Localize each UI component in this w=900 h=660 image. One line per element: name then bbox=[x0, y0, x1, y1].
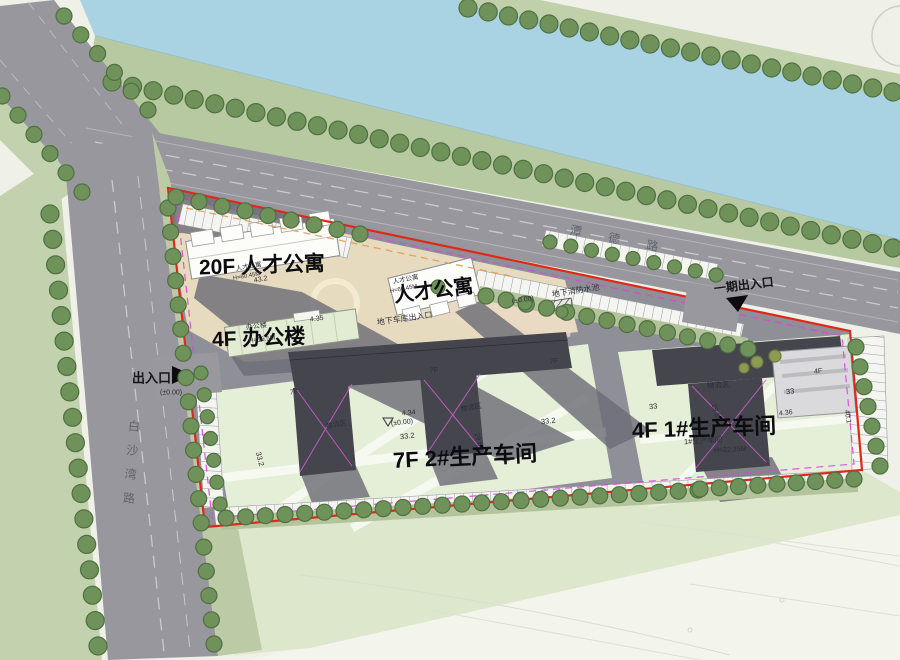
tree-icon bbox=[513, 493, 529, 509]
tree-icon bbox=[183, 418, 199, 434]
tree-icon bbox=[479, 3, 497, 21]
tree-icon bbox=[81, 561, 99, 579]
tree-icon bbox=[175, 345, 191, 361]
tree-icon bbox=[260, 208, 276, 224]
tree-icon bbox=[58, 165, 74, 181]
tree-icon bbox=[611, 487, 627, 503]
tree-icon bbox=[178, 370, 194, 386]
tree-icon bbox=[560, 19, 578, 37]
tree-icon bbox=[617, 182, 635, 200]
tree-icon bbox=[585, 243, 599, 257]
tree-icon bbox=[66, 434, 84, 452]
tree-icon bbox=[688, 264, 702, 278]
tree-icon bbox=[90, 46, 106, 62]
tree-icon bbox=[769, 350, 781, 362]
tree-icon bbox=[165, 248, 181, 264]
tree-icon bbox=[535, 165, 553, 183]
tree-icon bbox=[214, 198, 230, 214]
tree-icon bbox=[552, 490, 568, 506]
tree-icon bbox=[739, 363, 749, 373]
tree-icon bbox=[44, 230, 62, 248]
tree-icon bbox=[204, 432, 218, 446]
tree-icon bbox=[206, 636, 222, 652]
tree-icon bbox=[520, 11, 538, 29]
tree-icon bbox=[197, 388, 211, 402]
tree-icon bbox=[682, 43, 700, 61]
tree-icon bbox=[884, 83, 900, 101]
tree-icon bbox=[218, 510, 234, 526]
tree-icon bbox=[257, 508, 273, 524]
tree-icon bbox=[808, 474, 824, 490]
tree-icon bbox=[173, 321, 189, 337]
tree-icon bbox=[788, 475, 804, 491]
site-plan-drawing bbox=[0, 0, 900, 660]
tree-icon bbox=[329, 221, 345, 237]
tree-icon bbox=[193, 515, 209, 531]
tree-icon bbox=[309, 117, 327, 135]
tree-icon bbox=[661, 39, 679, 57]
tree-icon bbox=[848, 339, 864, 355]
tree-icon bbox=[42, 146, 58, 162]
tree-icon bbox=[680, 329, 696, 345]
tree-icon bbox=[702, 47, 720, 65]
tree-icon bbox=[668, 260, 682, 274]
tree-icon bbox=[74, 184, 90, 200]
tree-icon bbox=[78, 535, 96, 553]
tree-icon bbox=[731, 479, 747, 495]
tree-icon bbox=[601, 27, 619, 45]
tree-icon bbox=[106, 64, 122, 80]
tree-icon bbox=[711, 480, 727, 496]
tree-icon bbox=[783, 63, 801, 81]
tree-icon bbox=[709, 268, 723, 282]
tree-icon bbox=[210, 475, 224, 489]
tree-icon bbox=[206, 95, 224, 113]
tree-icon bbox=[592, 488, 608, 504]
tree-icon bbox=[226, 99, 244, 117]
tree-icon bbox=[720, 204, 738, 222]
tree-icon bbox=[651, 484, 667, 500]
tree-icon bbox=[576, 174, 594, 192]
tree-icon bbox=[670, 483, 686, 499]
tree-icon bbox=[10, 107, 26, 123]
tree-icon bbox=[375, 501, 391, 517]
tree-icon bbox=[659, 325, 675, 341]
tree-icon bbox=[856, 379, 872, 395]
tree-icon bbox=[86, 612, 104, 630]
tree-icon bbox=[803, 67, 821, 85]
tree-icon bbox=[168, 273, 184, 289]
tree-icon bbox=[237, 203, 253, 219]
tree-icon bbox=[123, 83, 139, 99]
tree-icon bbox=[316, 504, 332, 520]
tree-icon bbox=[72, 485, 90, 503]
tree-icon bbox=[191, 194, 207, 210]
tree-icon bbox=[213, 497, 227, 511]
tree-icon bbox=[700, 333, 716, 349]
tree-icon bbox=[498, 292, 514, 308]
tree-icon bbox=[864, 79, 882, 97]
tree-icon bbox=[763, 59, 781, 77]
tree-icon bbox=[722, 51, 740, 69]
tree-icon bbox=[494, 156, 512, 174]
tree-icon bbox=[474, 495, 490, 511]
tree-icon bbox=[411, 139, 429, 157]
tree-icon bbox=[191, 491, 207, 507]
tree-icon bbox=[391, 134, 409, 152]
tree-icon bbox=[599, 313, 615, 329]
tree-icon bbox=[641, 35, 659, 53]
tree-icon bbox=[168, 189, 184, 205]
site-plan-stage: 20F 人才公寓人才公寓4F 办公楼7F 2#生产车间4F 1#生产车间出入口一… bbox=[0, 0, 900, 660]
tree-icon bbox=[370, 130, 388, 148]
tree-icon bbox=[596, 178, 614, 196]
tree-icon bbox=[56, 8, 72, 24]
tree-icon bbox=[539, 300, 555, 316]
tree-icon bbox=[556, 306, 568, 318]
tree-icon bbox=[823, 71, 841, 89]
tree-icon bbox=[329, 121, 347, 139]
tree-icon bbox=[26, 126, 42, 142]
tree-icon bbox=[802, 222, 820, 240]
tree-icon bbox=[75, 510, 93, 528]
tree-icon bbox=[864, 418, 880, 434]
tree-icon bbox=[200, 410, 214, 424]
tree-icon bbox=[89, 637, 107, 655]
tree-icon bbox=[518, 296, 532, 310]
tree-icon bbox=[198, 563, 214, 579]
tree-icon bbox=[619, 317, 635, 333]
tree-icon bbox=[781, 217, 799, 235]
tree-icon bbox=[140, 102, 156, 118]
tree-icon bbox=[621, 31, 639, 49]
tree-icon bbox=[58, 358, 76, 376]
tree-icon bbox=[750, 477, 766, 493]
tree-icon bbox=[73, 27, 89, 43]
tree-icon bbox=[395, 500, 411, 516]
tree-icon bbox=[761, 213, 779, 231]
tree-icon bbox=[822, 226, 840, 244]
tree-icon bbox=[144, 82, 162, 100]
tree-icon bbox=[352, 226, 368, 242]
tree-icon bbox=[432, 143, 450, 161]
tree-icon bbox=[64, 408, 82, 426]
tree-icon bbox=[165, 86, 183, 104]
tree-icon bbox=[555, 169, 573, 187]
tree-icon bbox=[336, 503, 352, 519]
tree-icon bbox=[872, 458, 888, 474]
tree-icon bbox=[431, 280, 445, 294]
tree-icon bbox=[83, 586, 101, 604]
tree-icon bbox=[306, 217, 322, 233]
tree-icon bbox=[846, 471, 862, 487]
tree-icon bbox=[769, 476, 785, 492]
tree-icon bbox=[186, 442, 202, 458]
tree-icon bbox=[69, 459, 87, 477]
tree-icon bbox=[267, 108, 285, 126]
tree-icon bbox=[543, 235, 557, 249]
tree-icon bbox=[827, 472, 843, 488]
tree-icon bbox=[605, 247, 619, 261]
tree-icon bbox=[844, 75, 862, 93]
tree-icon bbox=[692, 481, 708, 497]
tree-icon bbox=[493, 494, 509, 510]
tree-icon bbox=[434, 497, 450, 513]
tree-icon bbox=[194, 366, 208, 380]
tree-icon bbox=[180, 394, 196, 410]
tree-icon bbox=[740, 208, 758, 226]
tree-icon bbox=[843, 230, 861, 248]
tree-icon bbox=[277, 507, 293, 523]
tree-icon bbox=[720, 337, 736, 353]
tree-icon bbox=[203, 612, 219, 628]
tree-icon bbox=[350, 125, 368, 143]
tree-icon bbox=[658, 191, 676, 209]
tree-icon bbox=[540, 15, 558, 33]
tree-icon bbox=[572, 489, 588, 505]
tree-icon bbox=[699, 200, 717, 218]
tree-icon bbox=[647, 256, 661, 270]
tree-icon bbox=[415, 498, 431, 514]
tree-icon bbox=[626, 252, 640, 266]
tree-icon bbox=[52, 307, 70, 325]
tree-icon bbox=[201, 588, 217, 604]
tree-icon bbox=[868, 438, 884, 454]
tree-icon bbox=[41, 205, 59, 223]
tree-icon bbox=[283, 212, 299, 228]
tree-icon bbox=[740, 341, 756, 357]
tree-icon bbox=[238, 509, 254, 525]
tree-icon bbox=[637, 187, 655, 205]
tree-icon bbox=[163, 224, 179, 240]
tree-icon bbox=[0, 88, 10, 104]
tree-icon bbox=[47, 256, 65, 274]
tree-icon bbox=[55, 332, 73, 350]
tree-icon bbox=[852, 359, 868, 375]
tree-icon bbox=[288, 112, 306, 130]
tree-icon bbox=[639, 321, 655, 337]
tree-icon bbox=[452, 147, 470, 165]
tree-icon bbox=[631, 486, 647, 502]
tree-icon bbox=[579, 308, 595, 324]
tree-icon bbox=[742, 55, 760, 73]
tree-icon bbox=[514, 160, 532, 178]
tree-icon bbox=[478, 288, 494, 304]
tree-icon bbox=[185, 91, 203, 109]
tree-icon bbox=[500, 7, 518, 25]
tree-icon bbox=[863, 235, 881, 253]
tree-icon bbox=[533, 491, 549, 507]
tree-icon bbox=[188, 466, 204, 482]
tree-icon bbox=[473, 152, 491, 170]
tree-icon bbox=[860, 399, 876, 415]
tree-icon bbox=[679, 195, 697, 213]
tree-icon bbox=[50, 281, 68, 299]
tree-icon bbox=[459, 0, 477, 17]
tree-icon bbox=[247, 104, 265, 122]
tree-icon bbox=[454, 496, 470, 512]
tree-icon bbox=[580, 23, 598, 41]
tree-icon bbox=[884, 239, 900, 257]
tree-icon bbox=[196, 539, 212, 555]
tree-icon bbox=[751, 356, 763, 368]
tree-icon bbox=[297, 505, 313, 521]
tree-icon bbox=[170, 297, 186, 313]
tree-icon bbox=[564, 239, 578, 253]
tree-icon bbox=[207, 453, 221, 467]
tree-icon bbox=[61, 383, 79, 401]
tree-icon bbox=[356, 502, 372, 518]
